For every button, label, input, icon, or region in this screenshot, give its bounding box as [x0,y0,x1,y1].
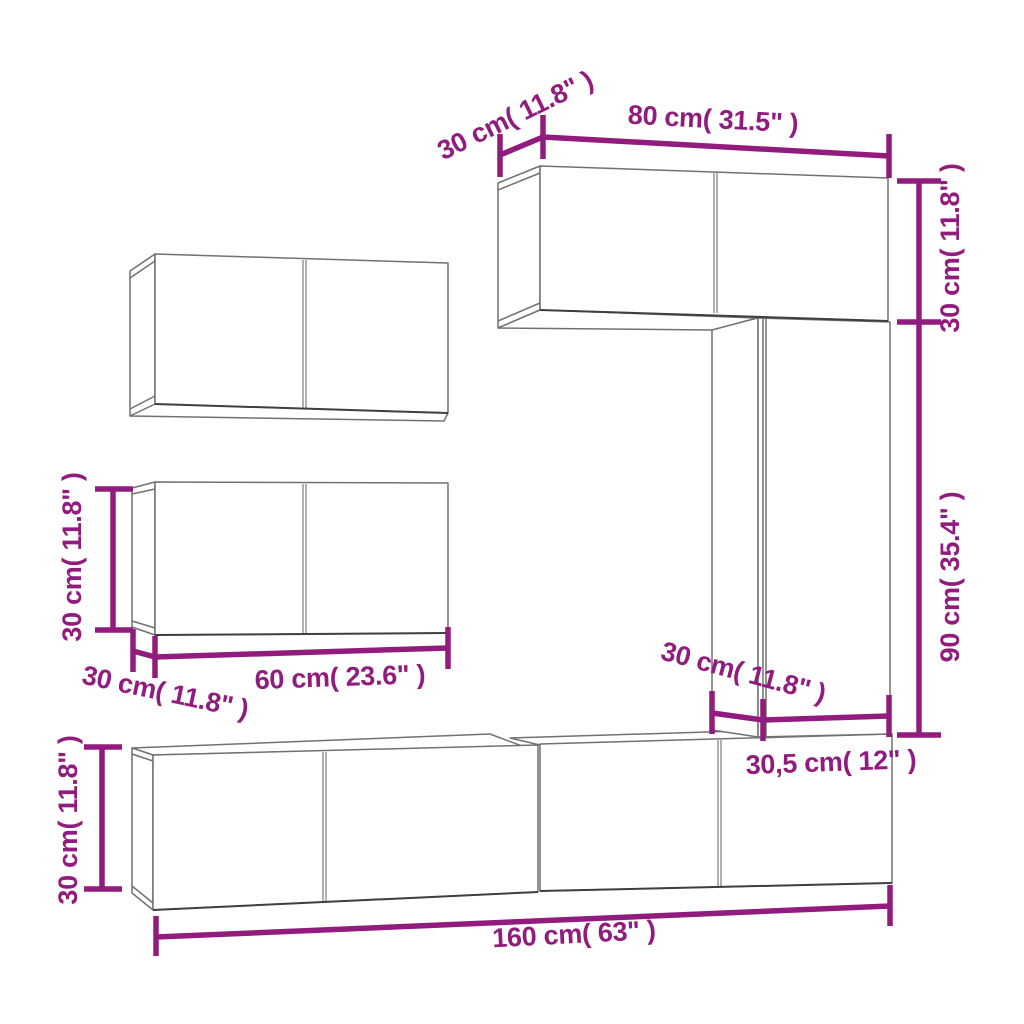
bottom-left-cabinet-front-face [153,745,538,910]
middle-left-wall-cabinet [132,482,448,635]
middle-left-cabinet-side-face [132,482,155,635]
dimension-label-right-lower-height: 90 cm( 35.4" ) [935,492,965,663]
diagram-canvas: 30 cm( 11.8" ) 80 cm( 31.5" ) 30 cm( 11.… [0,0,1024,1024]
dimension-label-bottom-height: 30 cm( 11.8" ) [53,735,83,904]
dimension-line-mid-height [95,489,133,630]
furniture-dimension-diagram: 30 cm( 11.8" ) 80 cm( 31.5" ) 30 cm( 11.… [0,0,1024,1024]
dimension-label-mid-depth: 30 cm( 11.8" ) [80,660,252,725]
middle-left-cabinet-front-face [155,482,448,635]
top-left-cabinet-side-face [130,254,155,416]
dimension-label-top-width: 80 cm( 31.5" ) [627,100,799,139]
dimension-label-column-width: 30,5 cm( 12" ) [745,744,917,780]
bottom-left-cabinet-side-face [132,748,153,910]
top-left-cabinet-front-face [155,254,448,413]
top-right-wall-cabinet [498,166,888,330]
dimension-label-mid-height: 30 cm( 11.8" ) [57,472,87,641]
dimension-label-right-upper-height: 30 cm( 11.8" ) [935,163,965,332]
top-right-cabinet-side-face [498,166,540,328]
top-left-wall-cabinet [130,254,448,421]
dimension-label-mid-width: 60 cm( 23.6" ) [254,659,426,695]
dimension-line-mid-depth [133,629,155,672]
bottom-left-tv-cabinet [132,734,538,910]
dimension-line-bottom-height [84,747,122,889]
